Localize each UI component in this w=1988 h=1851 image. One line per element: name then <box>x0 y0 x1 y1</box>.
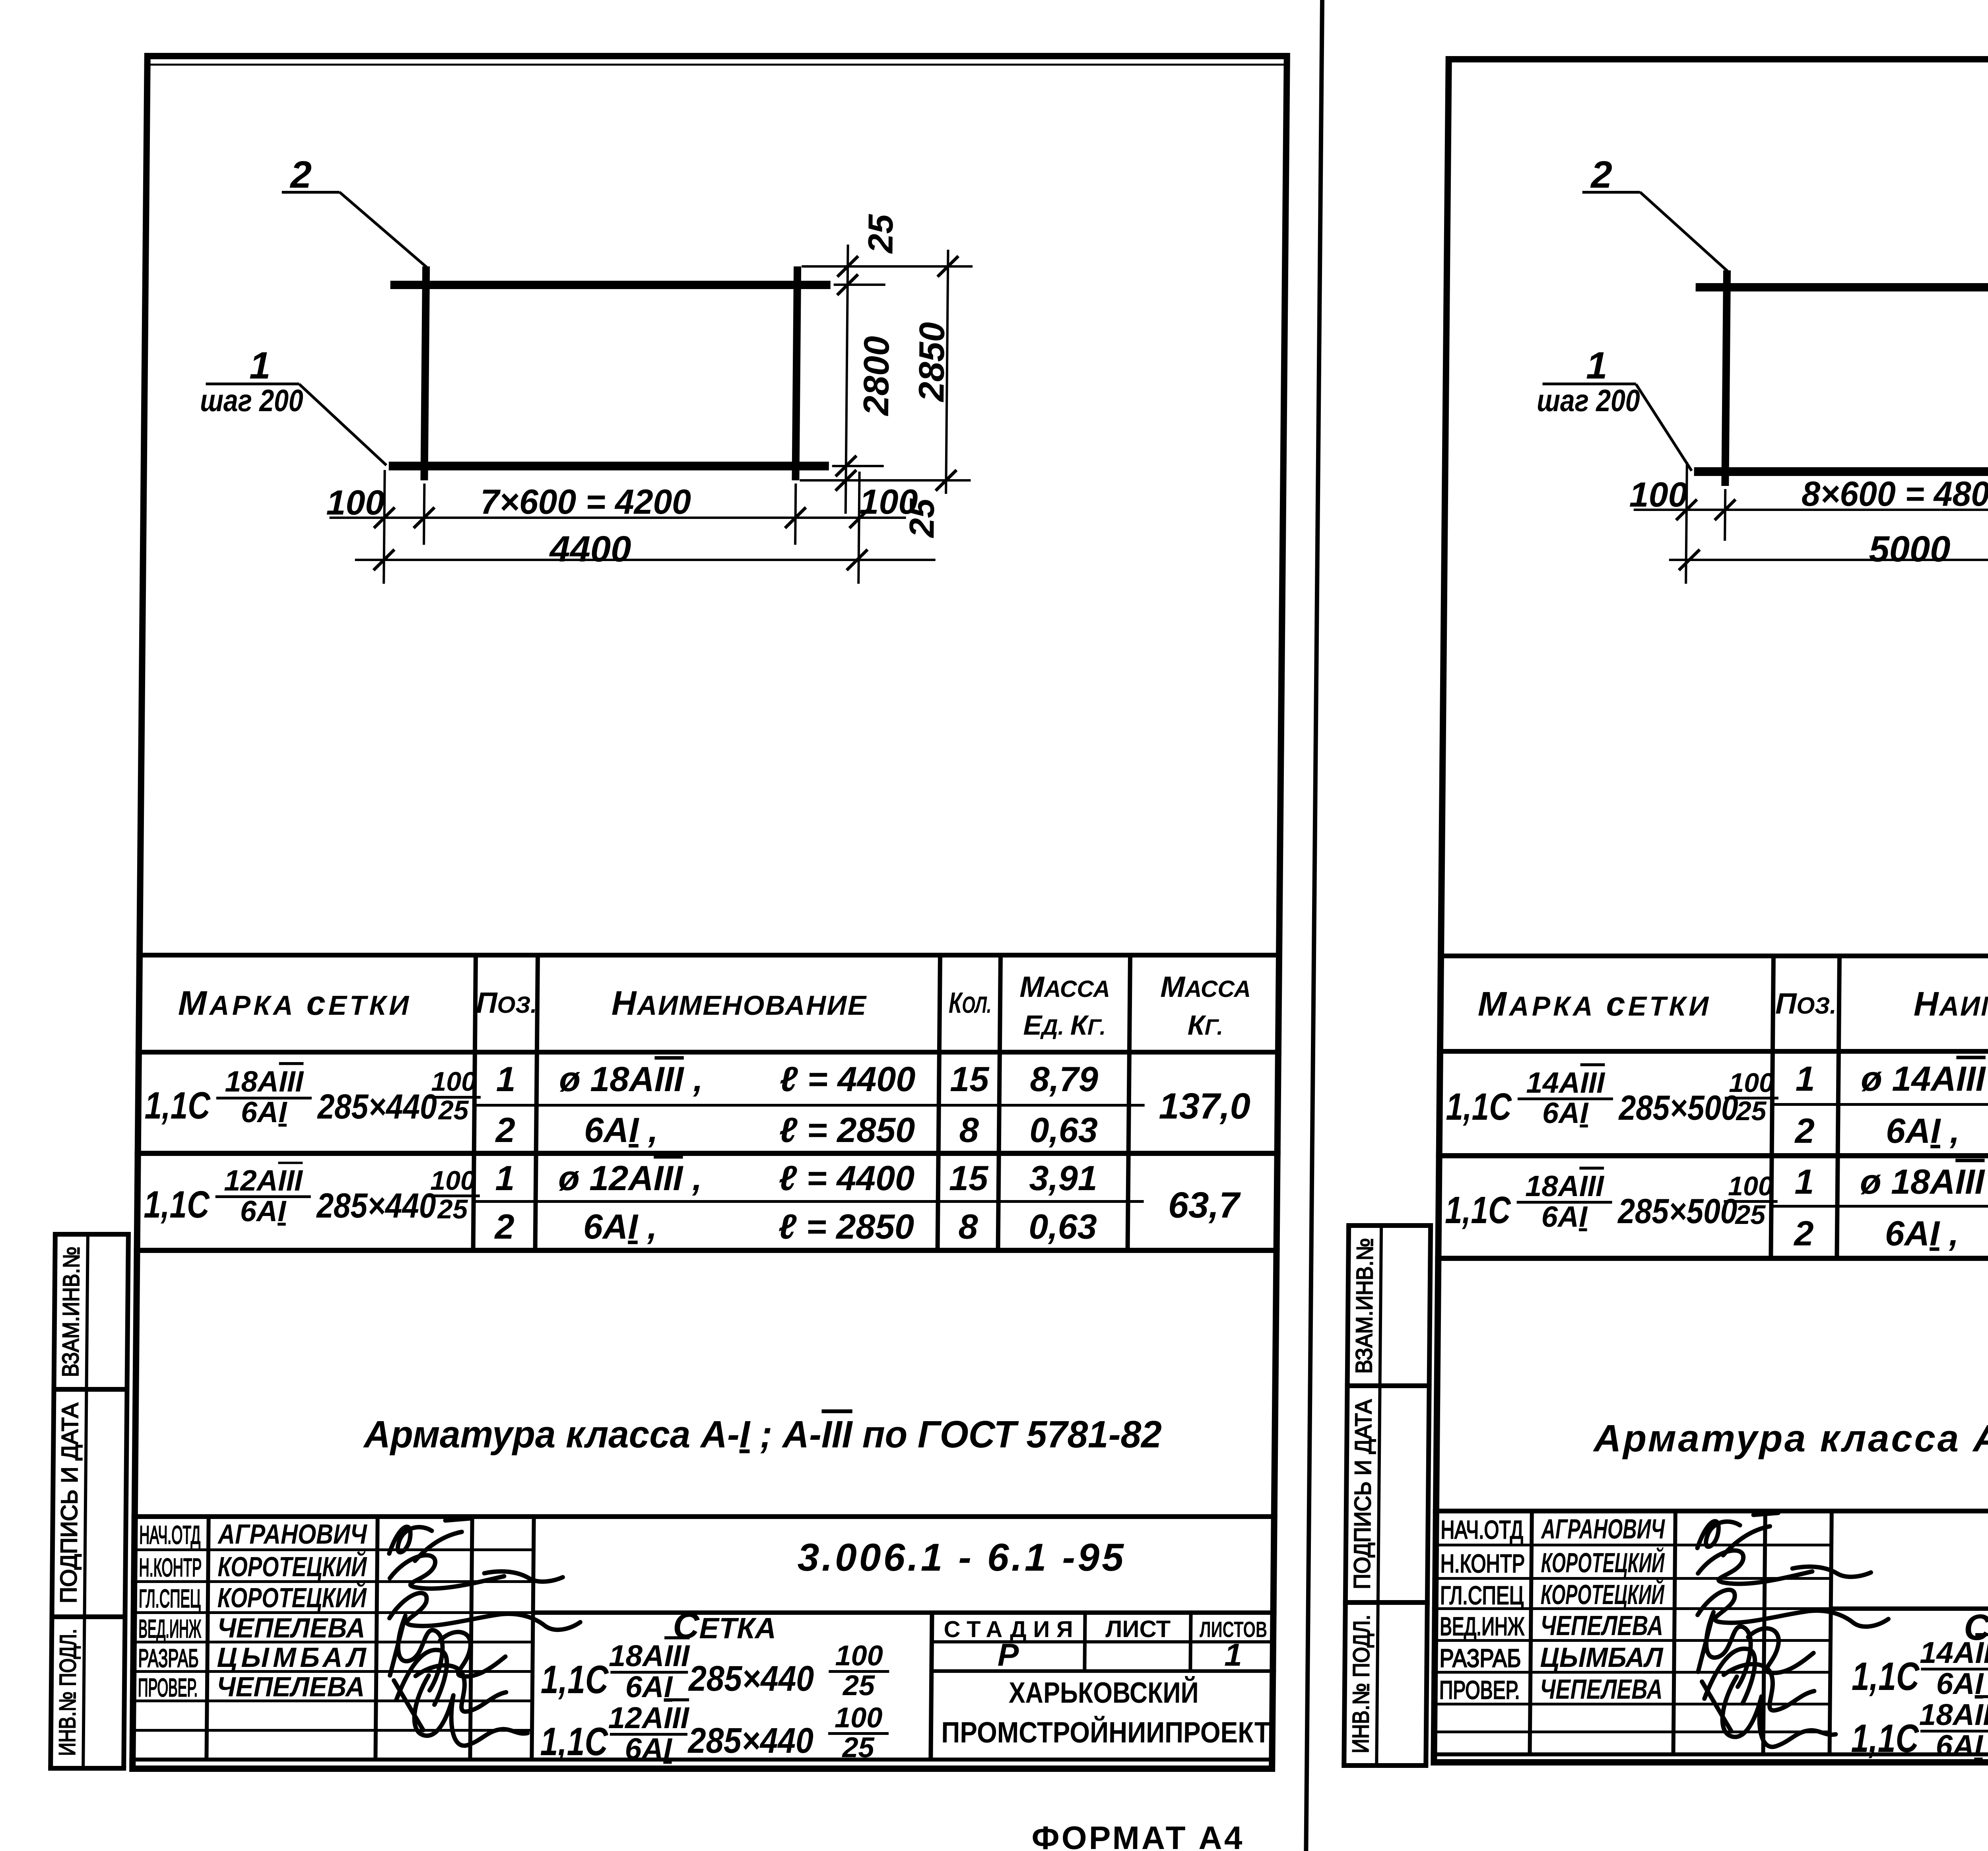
svg-text:ЧЕПЕЛЕВА: ЧЕПЕЛЕВА <box>217 1671 365 1702</box>
svg-text:2800: 2800 <box>856 336 897 416</box>
svg-text:6АI: 6АI <box>1541 1200 1588 1233</box>
svg-text:12АIII: 12АIII <box>224 1164 303 1197</box>
svg-text:Н.КОНТР: Н.КОНТР <box>1440 1550 1525 1578</box>
svg-text:25: 25 <box>860 214 900 254</box>
svg-text:ЛИСТ: ЛИСТ <box>1105 1616 1171 1642</box>
svg-text:25: 25 <box>1734 1200 1766 1230</box>
svg-text:18АIII: 18АIII <box>609 1639 690 1673</box>
svg-text:2: 2 <box>289 153 312 196</box>
svg-text:15: 15 <box>949 1158 989 1198</box>
svg-text:18АIII: 18АIII <box>1919 1698 1988 1732</box>
svg-text:5000: 5000 <box>1869 529 1951 569</box>
svg-text:Н.КОНТР: Н.КОНТР <box>139 1554 202 1582</box>
svg-text:ø 18АIII ,: ø 18АIII , <box>1860 1162 1988 1201</box>
svg-text:1: 1 <box>496 1059 516 1099</box>
svg-text:8×600 = 4800: 8×600 = 4800 <box>1802 474 1988 513</box>
svg-text:1,1С: 1,1С <box>540 1720 608 1764</box>
svg-text:ℓ = 4400: ℓ = 4400 <box>779 1158 914 1198</box>
svg-text:15: 15 <box>950 1059 990 1099</box>
svg-text:ГЛ.СПЕЦ: ГЛ.СПЕЦ <box>1440 1581 1524 1610</box>
svg-text:ПРОМСТРОЙНИИПРОЕКТ: ПРОМСТРОЙНИИПРОЕКТ <box>941 1715 1270 1749</box>
svg-text:ø 18АIII ,: ø 18АIII , <box>559 1059 703 1099</box>
svg-text:1,1С: 1,1С <box>541 1658 609 1702</box>
svg-text:100: 100 <box>1729 1068 1774 1098</box>
svg-text:18АIII: 18АIII <box>1525 1169 1605 1202</box>
svg-text:ПОДПИСЬ И ДАТА: ПОДПИСЬ И ДАТА <box>56 1402 83 1603</box>
svg-text:8: 8 <box>958 1207 978 1246</box>
svg-text:1,1С: 1,1С <box>1446 1085 1512 1128</box>
svg-text:25: 25 <box>841 1732 875 1764</box>
svg-text:Арматура класса А-I ; А-III: Арматура класса А-I ; А-III по ГОСТ 5781… <box>363 1413 1162 1456</box>
svg-text:25: 25 <box>842 1670 876 1701</box>
svg-text:1: 1 <box>1224 1637 1242 1672</box>
svg-text:6АI: 6АI <box>1542 1096 1589 1129</box>
svg-text:ℓ = 2850: ℓ = 2850 <box>778 1207 914 1246</box>
svg-text:ГЛ.СПЕЦ: ГЛ.СПЕЦ <box>139 1585 201 1613</box>
svg-text:1,1С: 1,1С <box>144 1183 210 1226</box>
svg-text:1: 1 <box>249 344 271 387</box>
svg-text:1: 1 <box>495 1158 515 1198</box>
svg-text:25: 25 <box>437 1194 468 1224</box>
svg-text:ПРОВЕР.: ПРОВЕР. <box>1439 1676 1520 1704</box>
svg-text:ВЗАМ.ИНВ.№: ВЗАМ.ИНВ.№ <box>58 1247 85 1377</box>
svg-text:РАЗРАБ: РАЗРАБ <box>138 1645 199 1673</box>
svg-text:1: 1 <box>1586 344 1607 387</box>
svg-text:ЧЕПЕЛЕВА: ЧЕПЕЛЕВА <box>217 1612 365 1643</box>
svg-text:КОРОТЕЦКИЙ: КОРОТЕЦКИЙ <box>217 1581 367 1613</box>
svg-text:285×440: 285×440 <box>316 1087 437 1126</box>
svg-text:ЕД. КГ.: ЕД. КГ. <box>1023 1010 1106 1041</box>
svg-text:ЦЫМБАЛ: ЦЫМБАЛ <box>1540 1642 1664 1673</box>
svg-text:6АI ,: 6АI , <box>1886 1111 1960 1150</box>
svg-text:НАЧ.ОТД: НАЧ.ОТД <box>139 1521 201 1549</box>
svg-text:2: 2 <box>494 1207 514 1246</box>
svg-text:63,7: 63,7 <box>1168 1185 1241 1226</box>
svg-text:НАИМЕНОВАНИЕ: НАИМЕНОВАНИЕ <box>1914 985 1988 1023</box>
svg-text:АГРАНОВИЧ: АГРАНОВИЧ <box>217 1518 368 1550</box>
svg-text:АГРАНОВИЧ: АГРАНОВИЧ <box>1540 1513 1665 1544</box>
svg-text:ø 12АIII ,: ø 12АIII , <box>558 1158 703 1198</box>
svg-text:ФОРМАТ А4: ФОРМАТ А4 <box>1031 1820 1242 1851</box>
svg-text:1,1С: 1,1С <box>1851 1717 1919 1761</box>
svg-text:1,1С: 1,1С <box>1852 1655 1920 1699</box>
svg-text:2850: 2850 <box>912 322 952 402</box>
svg-text:6АI: 6АI <box>1936 1729 1984 1763</box>
svg-text:1,1С: 1,1С <box>1445 1189 1512 1231</box>
svg-text:0,63: 0,63 <box>1029 1207 1097 1246</box>
svg-text:25: 25 <box>437 1095 469 1125</box>
svg-text:РАЗРАБ: РАЗРАБ <box>1439 1644 1521 1672</box>
svg-text:100: 100 <box>835 1702 883 1734</box>
svg-text:НАИМЕНОВАНИЕ: НАИМЕНОВАНИЕ <box>612 984 867 1022</box>
svg-text:100: 100 <box>1728 1171 1773 1201</box>
svg-text:1: 1 <box>1795 1059 1815 1098</box>
svg-text:2: 2 <box>1590 153 1612 196</box>
svg-text:25: 25 <box>1735 1096 1767 1126</box>
svg-text:0,63: 0,63 <box>1029 1110 1098 1150</box>
svg-text:137,0: 137,0 <box>1159 1086 1250 1127</box>
svg-text:ИНВ.№ ПОДЛ.: ИНВ.№ ПОДЛ. <box>54 1629 82 1756</box>
svg-text:6АI ,: 6АI , <box>583 1207 658 1246</box>
svg-text:14АIII: 14АIII <box>1526 1066 1606 1099</box>
svg-text:ПОДПИСЬ И ДАТА: ПОДПИСЬ И ДАТА <box>1349 1399 1376 1589</box>
svg-text:285×440: 285×440 <box>687 1721 813 1761</box>
svg-text:100: 100 <box>430 1165 476 1196</box>
svg-text:ЧЕПЕЛЕВА: ЧЕПЕЛЕВА <box>1540 1674 1663 1705</box>
svg-text:100: 100 <box>431 1066 476 1097</box>
svg-text:3,91: 3,91 <box>1029 1158 1097 1198</box>
svg-text:2: 2 <box>1794 1111 1815 1150</box>
svg-text:100: 100 <box>835 1640 883 1672</box>
svg-text:18АIII: 18АIII <box>225 1065 304 1098</box>
svg-text:6АI: 6АI <box>1936 1667 1984 1701</box>
svg-text:КОРОТЕЦКИЙ: КОРОТЕЦКИЙ <box>1541 1546 1665 1579</box>
svg-text:6АI ,: 6АI , <box>584 1110 658 1150</box>
svg-text:100: 100 <box>859 482 918 521</box>
svg-text:12АIII: 12АIII <box>608 1701 690 1735</box>
svg-text:285×440: 285×440 <box>316 1186 436 1225</box>
svg-text:ø 14АIII ,: ø 14АIII , <box>1861 1059 1988 1098</box>
svg-text:ПРОВЕР.: ПРОВЕР. <box>138 1673 198 1702</box>
svg-text:2: 2 <box>1793 1214 1814 1253</box>
svg-text:8,79: 8,79 <box>1030 1059 1098 1099</box>
svg-text:285×500: 285×500 <box>1618 1088 1738 1127</box>
svg-text:ℓ = 4400: ℓ = 4400 <box>779 1059 915 1099</box>
svg-text:285×440: 285×440 <box>688 1659 814 1699</box>
svg-text:7×600 = 4200: 7×600 = 4200 <box>480 482 691 521</box>
svg-text:шаг 200: шаг 200 <box>1537 384 1640 418</box>
svg-text:ВЗАМ.ИНВ.№: ВЗАМ.ИНВ.№ <box>1351 1238 1378 1373</box>
svg-text:ХАРЬКОВСКИЙ: ХАРЬКОВСКИЙ <box>1009 1676 1199 1709</box>
svg-text:285×500: 285×500 <box>1617 1192 1738 1231</box>
svg-text:шаг 200: шаг 200 <box>200 384 303 418</box>
svg-text:4400: 4400 <box>549 529 631 569</box>
svg-text:КОРОТЕЦКИЙ: КОРОТЕЦКИЙ <box>1541 1578 1665 1610</box>
svg-text:НАЧ.ОТД: НАЧ.ОТД <box>1441 1516 1523 1544</box>
svg-text:6АI: 6АI <box>625 1732 673 1766</box>
svg-text:8: 8 <box>959 1110 979 1150</box>
svg-text:1,1С: 1,1С <box>144 1084 211 1127</box>
svg-text:2: 2 <box>495 1110 515 1150</box>
svg-text:6АI: 6АI <box>241 1095 287 1128</box>
svg-text:14АIII: 14АIII <box>1920 1636 1988 1670</box>
svg-text:ВЕД.ИНЖ: ВЕД.ИНЖ <box>1440 1612 1525 1640</box>
svg-text:ЧЕПЕЛЕВА: ЧЕПЕЛЕВА <box>1540 1610 1664 1641</box>
svg-text:6АI: 6АI <box>625 1670 673 1704</box>
svg-text:КГ.: КГ. <box>1187 1010 1223 1041</box>
svg-text:1: 1 <box>1794 1162 1814 1201</box>
svg-text:ВЕД.ИНЖ: ВЕД.ИНЖ <box>138 1615 202 1643</box>
svg-text:6АI ,: 6АI , <box>1885 1214 1959 1253</box>
svg-text:Арматура класса А-I ; А-III: Арматура класса А-I ; А-III по ГОСТ 5781… <box>1593 1417 1988 1460</box>
svg-text:100: 100 <box>326 483 385 522</box>
svg-text:Р: Р <box>998 1637 1019 1672</box>
svg-text:КОРОТЕЦКИЙ: КОРОТЕЦКИЙ <box>217 1550 367 1582</box>
svg-text:ИНВ.№ ПОДЛ.: ИНВ.№ ПОДЛ. <box>1348 1615 1375 1754</box>
svg-text:ℓ = 2850: ℓ = 2850 <box>779 1110 915 1150</box>
svg-text:6АI: 6АI <box>240 1195 286 1228</box>
svg-text:100: 100 <box>1629 475 1688 514</box>
